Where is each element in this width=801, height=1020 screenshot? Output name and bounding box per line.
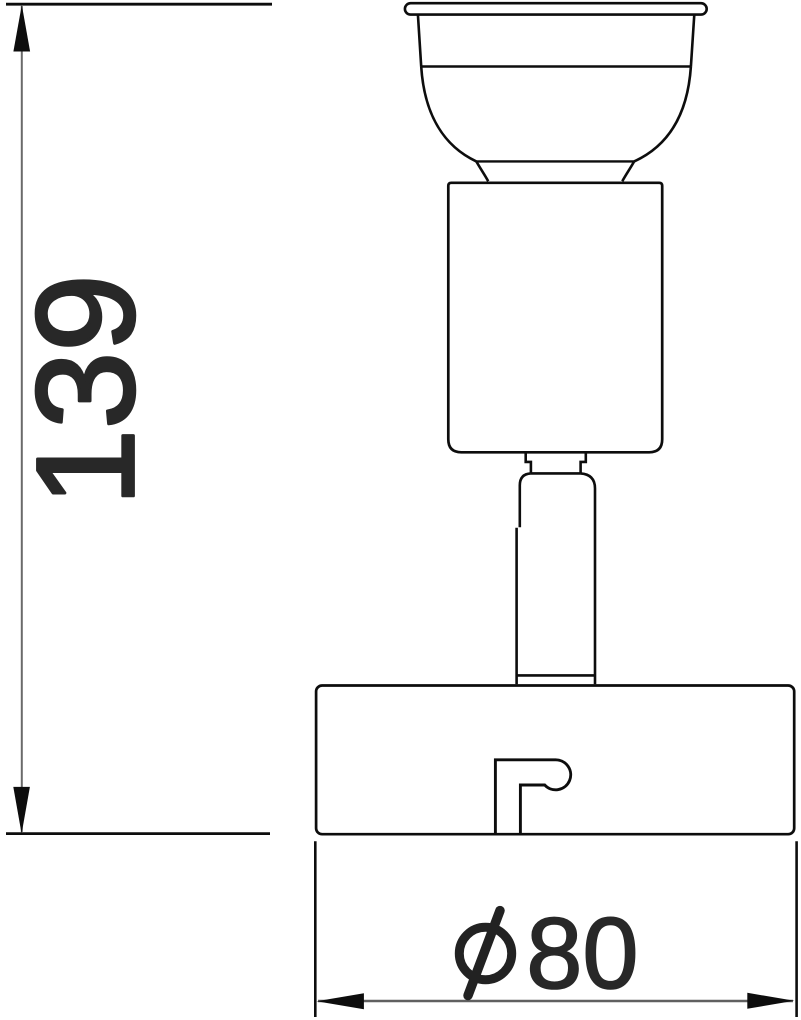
svg-text:139: 139 — [8, 274, 163, 506]
svg-text:80: 80 — [526, 898, 638, 1010]
